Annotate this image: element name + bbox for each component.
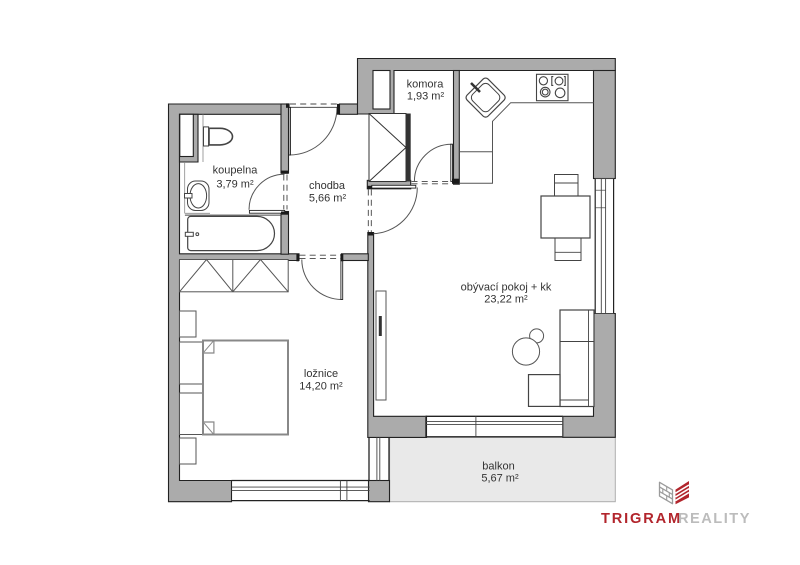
- svg-text:obývací pokoj + kk: obývací pokoj + kk: [461, 282, 552, 294]
- svg-text:5,66 m²: 5,66 m²: [309, 193, 347, 205]
- svg-text:3,79 m²: 3,79 m²: [216, 178, 254, 190]
- svg-text:chodba: chodba: [309, 180, 346, 192]
- svg-text:koupelna: koupelna: [213, 165, 259, 177]
- svg-text:23,22 m²: 23,22 m²: [484, 294, 528, 306]
- svg-text:5,67 m²: 5,67 m²: [481, 473, 519, 485]
- svg-text:1,93 m²: 1,93 m²: [407, 91, 445, 103]
- svg-text:14,20 m²: 14,20 m²: [299, 381, 343, 393]
- svg-text:REALITY: REALITY: [678, 511, 751, 527]
- svg-text:komora: komora: [407, 79, 445, 91]
- svg-text:TRIGRAM: TRIGRAM: [601, 511, 682, 527]
- svg-text:ložnice: ložnice: [304, 368, 338, 380]
- svg-text:balkon: balkon: [482, 460, 514, 472]
